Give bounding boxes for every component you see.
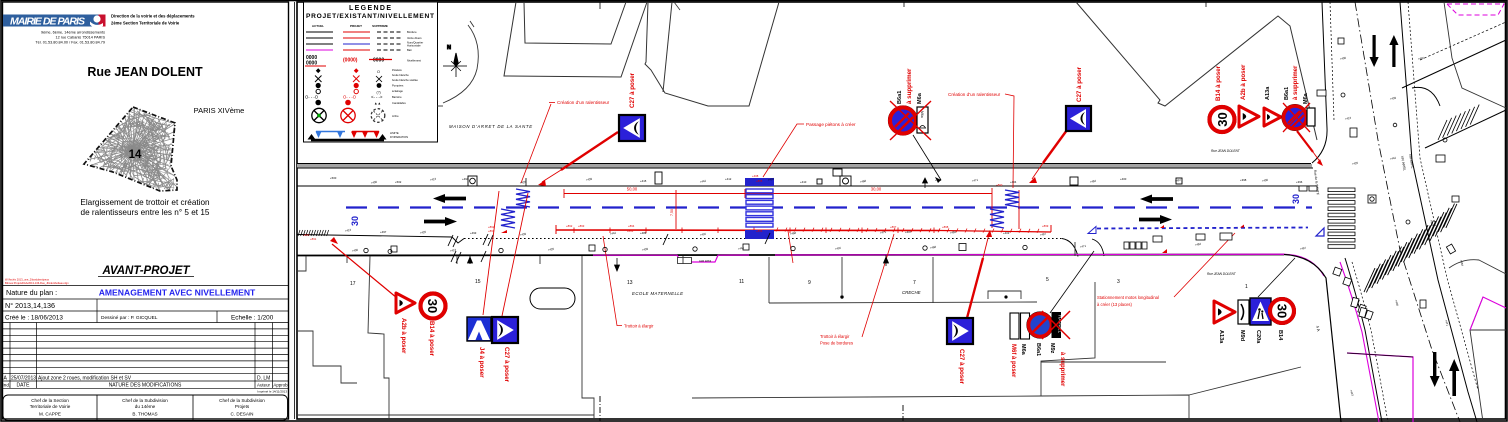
svg-text:à créer (13 places): à créer (13 places) <box>1097 302 1133 307</box>
svg-text:O- - -O: O- - -O <box>305 95 319 100</box>
svg-text:O- - -O: O- - -O <box>343 95 357 100</box>
svg-text:+410: +410 <box>800 180 807 184</box>
svg-text:M6a: M6a <box>1020 344 1026 356</box>
svg-text:Nivellement: Nivellement <box>407 59 421 63</box>
svg-text:14: 14 <box>129 149 142 161</box>
svg-text:Projets: Projets <box>235 404 250 409</box>
svg-text:A2b à poser: A2b à poser <box>400 318 407 354</box>
svg-text:+861: +861 <box>310 237 317 241</box>
svg-text:éclairage: éclairage <box>392 89 403 93</box>
svg-text:Pose de bordures: Pose de bordures <box>820 341 853 346</box>
svg-text:Trottoir à élargir: Trottoir à élargir <box>820 334 850 339</box>
svg-text:C27 à poser: C27 à poser <box>958 349 965 385</box>
svg-text:boule blanche: boule blanche <box>392 73 409 77</box>
svg-text:+502: +502 <box>395 180 402 184</box>
svg-text:N° 2013,14,136: N° 2013,14,136 <box>5 301 55 310</box>
svg-text:13: 13 <box>627 280 633 286</box>
svg-text:+404: +404 <box>1010 180 1017 184</box>
svg-text:Auteur: Auteur <box>257 383 270 388</box>
svg-text:du 14ème: du 14ème <box>135 404 156 409</box>
svg-text:30: 30 <box>1291 194 1301 204</box>
svg-text:Pompiers: Pompiers <box>392 84 404 88</box>
svg-text:Ajout zone 2 roues, modificati: Ajout zone 2 roues, modification SH et S… <box>38 376 132 382</box>
svg-text:+493: +493 <box>470 231 477 235</box>
svg-text:AMENAGEMENT AVEC NIVELLEMENT: AMENAGEMENT AVEC NIVELLEMENT <box>99 288 256 298</box>
svg-text:Territoriale de Voirie: Territoriale de Voirie <box>30 404 71 409</box>
svg-text:Tél. 01.53.80.84.00 / Fax. 01.: Tél. 01.53.80.84.00 / Fax. 01.53.80.84.7… <box>35 41 105 45</box>
svg-text:C27 à poser: C27 à poser <box>629 72 636 108</box>
svg-text:N: N <box>447 45 451 51</box>
svg-text:+860: +860 <box>303 233 310 237</box>
svg-text:Trottoir à élargir: Trottoir à élargir <box>624 324 654 329</box>
svg-text:+415: +415 <box>640 179 647 183</box>
svg-text:0000: 0000 <box>373 58 384 64</box>
svg-text:+863: +863 <box>578 224 585 228</box>
svg-text:M6a: M6a <box>917 92 923 104</box>
svg-text:B6a1: B6a1 <box>897 91 903 104</box>
svg-text:+494: +494 <box>462 177 469 181</box>
svg-text:15: 15 <box>475 279 481 285</box>
svg-text:A13a: A13a <box>1218 330 1224 344</box>
svg-text:+868: +868 <box>942 225 949 229</box>
svg-text:50,00: 50,00 <box>627 187 638 192</box>
svg-text:à supprimer: à supprimer <box>1293 65 1299 100</box>
svg-text:+866: +866 <box>756 229 763 233</box>
svg-text:M9d: M9d <box>1239 330 1245 342</box>
svg-text:Chef de la Subdivision: Chef de la Subdivision <box>219 398 265 403</box>
svg-text:Ind.: Ind. <box>3 383 11 388</box>
svg-text:Stationnement motos longitudin: Stationnement motos longitudinal <box>1097 295 1159 300</box>
svg-text:MAIRIE DE PARIS: MAIRIE DE PARIS <box>10 16 85 28</box>
svg-text:+403: +403 <box>1003 231 1010 235</box>
svg-text:30: 30 <box>425 299 440 313</box>
svg-text:MAISON D'ARRET DE LA SANTE: MAISON D'ARRET DE LA SANTE <box>449 124 533 129</box>
svg-text:+398: +398 <box>1240 178 1247 182</box>
svg-text:25/07/2013: 25/07/2013 <box>11 376 36 382</box>
svg-text:3: 3 <box>1117 279 1120 285</box>
svg-text:17: 17 <box>350 281 356 287</box>
svg-text:Arbre: Arbre <box>392 114 399 118</box>
svg-text:Chef de la Subdivision: Chef de la Subdivision <box>122 398 168 403</box>
svg-text:A13a: A13a <box>1265 86 1271 100</box>
svg-text:9ème, 6ème, 14ème arrondisseme: 9ème, 6ème, 14ème arrondissements <box>41 31 105 35</box>
svg-text:CRECHE: CRECHE <box>902 290 921 295</box>
svg-text:ACTUEL: ACTUEL <box>312 24 324 28</box>
svg-text:+412: +412 <box>725 177 732 181</box>
svg-text:C20a: C20a <box>1255 330 1261 344</box>
svg-text:+862: +862 <box>566 224 573 228</box>
svg-text:M6a: M6a <box>1303 92 1309 104</box>
svg-text:B2mes:ProjetsDGA/2013-136-Rue_: B2mes:ProjetsDGA/2013-136-Rue_JDolentbol… <box>5 281 69 285</box>
svg-text:B6a1: B6a1 <box>1035 343 1041 356</box>
svg-text:+861: +861 <box>627 229 634 233</box>
svg-text:AVANT-PROJET: AVANT-PROJET <box>101 265 190 277</box>
svg-text:Horizontale: Horizontale <box>407 44 421 48</box>
svg-text:+408: +408 <box>752 174 759 178</box>
svg-text:de ralentisseurs entre les n°: de ralentisseurs entre les n° 5 et 15 <box>81 208 210 217</box>
svg-text:B14: B14 <box>1277 330 1283 341</box>
svg-text:Barrière: Barrière <box>392 95 402 99</box>
svg-text:Imprimé le 14/11/2013: Imprimé le 14/11/2013 <box>257 390 287 394</box>
svg-text:Bati: Bati <box>407 48 412 52</box>
svg-text:boule blanche scellée: boule blanche scellée <box>392 78 418 82</box>
svg-text:B14 à poser: B14 à poser <box>428 321 435 357</box>
svg-text:Création d'un ralentisseur: Création d'un ralentisseur <box>557 100 610 105</box>
svg-text:C. DESAIN: C. DESAIN <box>231 412 254 417</box>
svg-text:PROJET: PROJET <box>350 24 362 28</box>
svg-text:+860: +860 <box>996 183 1003 187</box>
svg-text:JAR 4663: JAR 4663 <box>699 259 712 263</box>
svg-text:+863: +863 <box>488 229 495 233</box>
svg-text:B6a1: B6a1 <box>1284 87 1290 100</box>
svg-text:30: 30 <box>1274 304 1289 318</box>
svg-text:9: 9 <box>808 280 811 286</box>
svg-text:Approb: Approb <box>273 383 288 388</box>
svg-text:+500: +500 <box>330 176 337 180</box>
svg-text:+400: +400 <box>1120 177 1127 181</box>
svg-text:Elargissement de trottoir et c: Elargissement de trottoir et création <box>80 198 210 207</box>
svg-text:B. THOMAS: B. THOMAS <box>132 412 157 417</box>
svg-text:Rue JEAN DOLENT: Rue JEAN DOLENT <box>87 65 203 79</box>
svg-text:+396: +396 <box>1296 180 1303 184</box>
svg-text:Création d'un ralentisseur: Création d'un ralentisseur <box>948 92 1001 97</box>
svg-text:LEGENDE: LEGENDE <box>349 5 391 12</box>
svg-text:J4 à poser: J4 à poser <box>478 347 485 378</box>
svg-text:+864: +864 <box>628 224 635 228</box>
svg-text:PROJET/EXISTANT/NIVELLEMENT: PROJET/EXISTANT/NIVELLEMENT <box>306 13 434 20</box>
svg-text:A2b à poser: A2b à poser <box>1240 64 1247 100</box>
svg-text:LIMITE: LIMITE <box>390 131 399 135</box>
svg-text:˂- - -˃: ˂- - -˃ <box>371 95 383 100</box>
svg-text:2ème Section Territoriale de V: 2ème Section Territoriale de Voirie <box>111 21 180 26</box>
svg-text:+407: +407 <box>905 230 912 234</box>
svg-text:Créé le : 18/06/2013: Créé le : 18/06/2013 <box>5 315 63 322</box>
svg-text:+497: +497 <box>380 230 387 234</box>
svg-text:Voirie divers: Voirie divers <box>407 36 422 40</box>
svg-text:C27 à poser: C27 à poser <box>503 347 510 383</box>
svg-text:Chef de la Section: Chef de la Section <box>31 398 69 403</box>
svg-text:M6f à poser: M6f à poser <box>1010 344 1016 378</box>
svg-text:7,50: 7,50 <box>670 209 674 216</box>
svg-text:Dessiné par : P. GICQUEL: Dessiné par : P. GICQUEL <box>101 315 158 321</box>
svg-text:+867: +867 <box>890 225 897 229</box>
svg-text:M9z: M9z <box>1049 343 1055 354</box>
svg-text:W:\Archiv 2013_une_2\bordolent: W:\Archiv 2013_une_2\bordolentipeus <box>5 278 50 282</box>
svg-text:ECOLE MATERNELLE: ECOLE MATERNELLE <box>632 291 683 296</box>
svg-text:NATURE DES MODIFICATIONS: NATURE DES MODIFICATIONS <box>109 383 182 389</box>
svg-text:O: O <box>377 70 380 74</box>
svg-text:5: 5 <box>1046 277 1049 283</box>
svg-text:D'OPERATION: D'OPERATION <box>390 135 408 139</box>
svg-text:DATE: DATE <box>17 383 31 389</box>
svg-text:Passage piétons à créer: Passage piétons à créer <box>806 122 856 127</box>
svg-text:12 rue Cabanis 75014 PARIS: 12 rue Cabanis 75014 PARIS <box>55 36 105 40</box>
svg-text:11: 11 <box>739 279 744 285</box>
svg-text:(0000): (0000) <box>343 58 358 64</box>
svg-text:1: 1 <box>1245 284 1248 290</box>
svg-text:Rue JEAN DOLENT: Rue JEAN DOLENT <box>1211 149 1241 153</box>
svg-text:30,00: 30,00 <box>871 187 882 192</box>
svg-text:à supprimer: à supprimer <box>906 68 913 104</box>
svg-text:+406: +406 <box>935 178 942 182</box>
svg-text:Direction de la voirie et des: Direction de la voirie et des déplacemen… <box>111 14 195 19</box>
svg-text:+489: +489 <box>640 231 647 235</box>
svg-text:M6a: M6a <box>920 111 924 118</box>
svg-text:M. CAPPE: M. CAPPE <box>39 412 61 417</box>
svg-text:30: 30 <box>1215 112 1230 126</box>
svg-text:Bordure: Bordure <box>407 30 417 34</box>
svg-text:C27 à poser: C27 à poser <box>1076 66 1083 102</box>
svg-text:à supprimer: à supprimer <box>1059 352 1065 387</box>
svg-text:7: 7 <box>913 280 916 286</box>
svg-text:Rue JEAN DOLENT: Rue JEAN DOLENT <box>1207 272 1237 276</box>
svg-text:▲▲: ▲▲ <box>374 102 381 106</box>
svg-text:B14 à poser: B14 à poser <box>1215 65 1222 101</box>
svg-text:Potelets: Potelets <box>392 68 402 72</box>
svg-text:Candélabre: Candélabre <box>392 101 406 105</box>
svg-text:+865: +865 <box>756 179 763 183</box>
svg-text:Nature du plan :: Nature du plan : <box>6 288 57 297</box>
svg-text:D. LM: D. LM <box>257 376 270 382</box>
svg-text:30: 30 <box>350 216 360 226</box>
svg-text:Echelle : 1/200: Echelle : 1/200 <box>231 315 274 322</box>
svg-text:PARIS XIVème: PARIS XIVème <box>194 106 245 115</box>
svg-text:SUPPRIME: SUPPRIME <box>372 24 388 28</box>
svg-text:+869: +869 <box>1042 224 1049 228</box>
